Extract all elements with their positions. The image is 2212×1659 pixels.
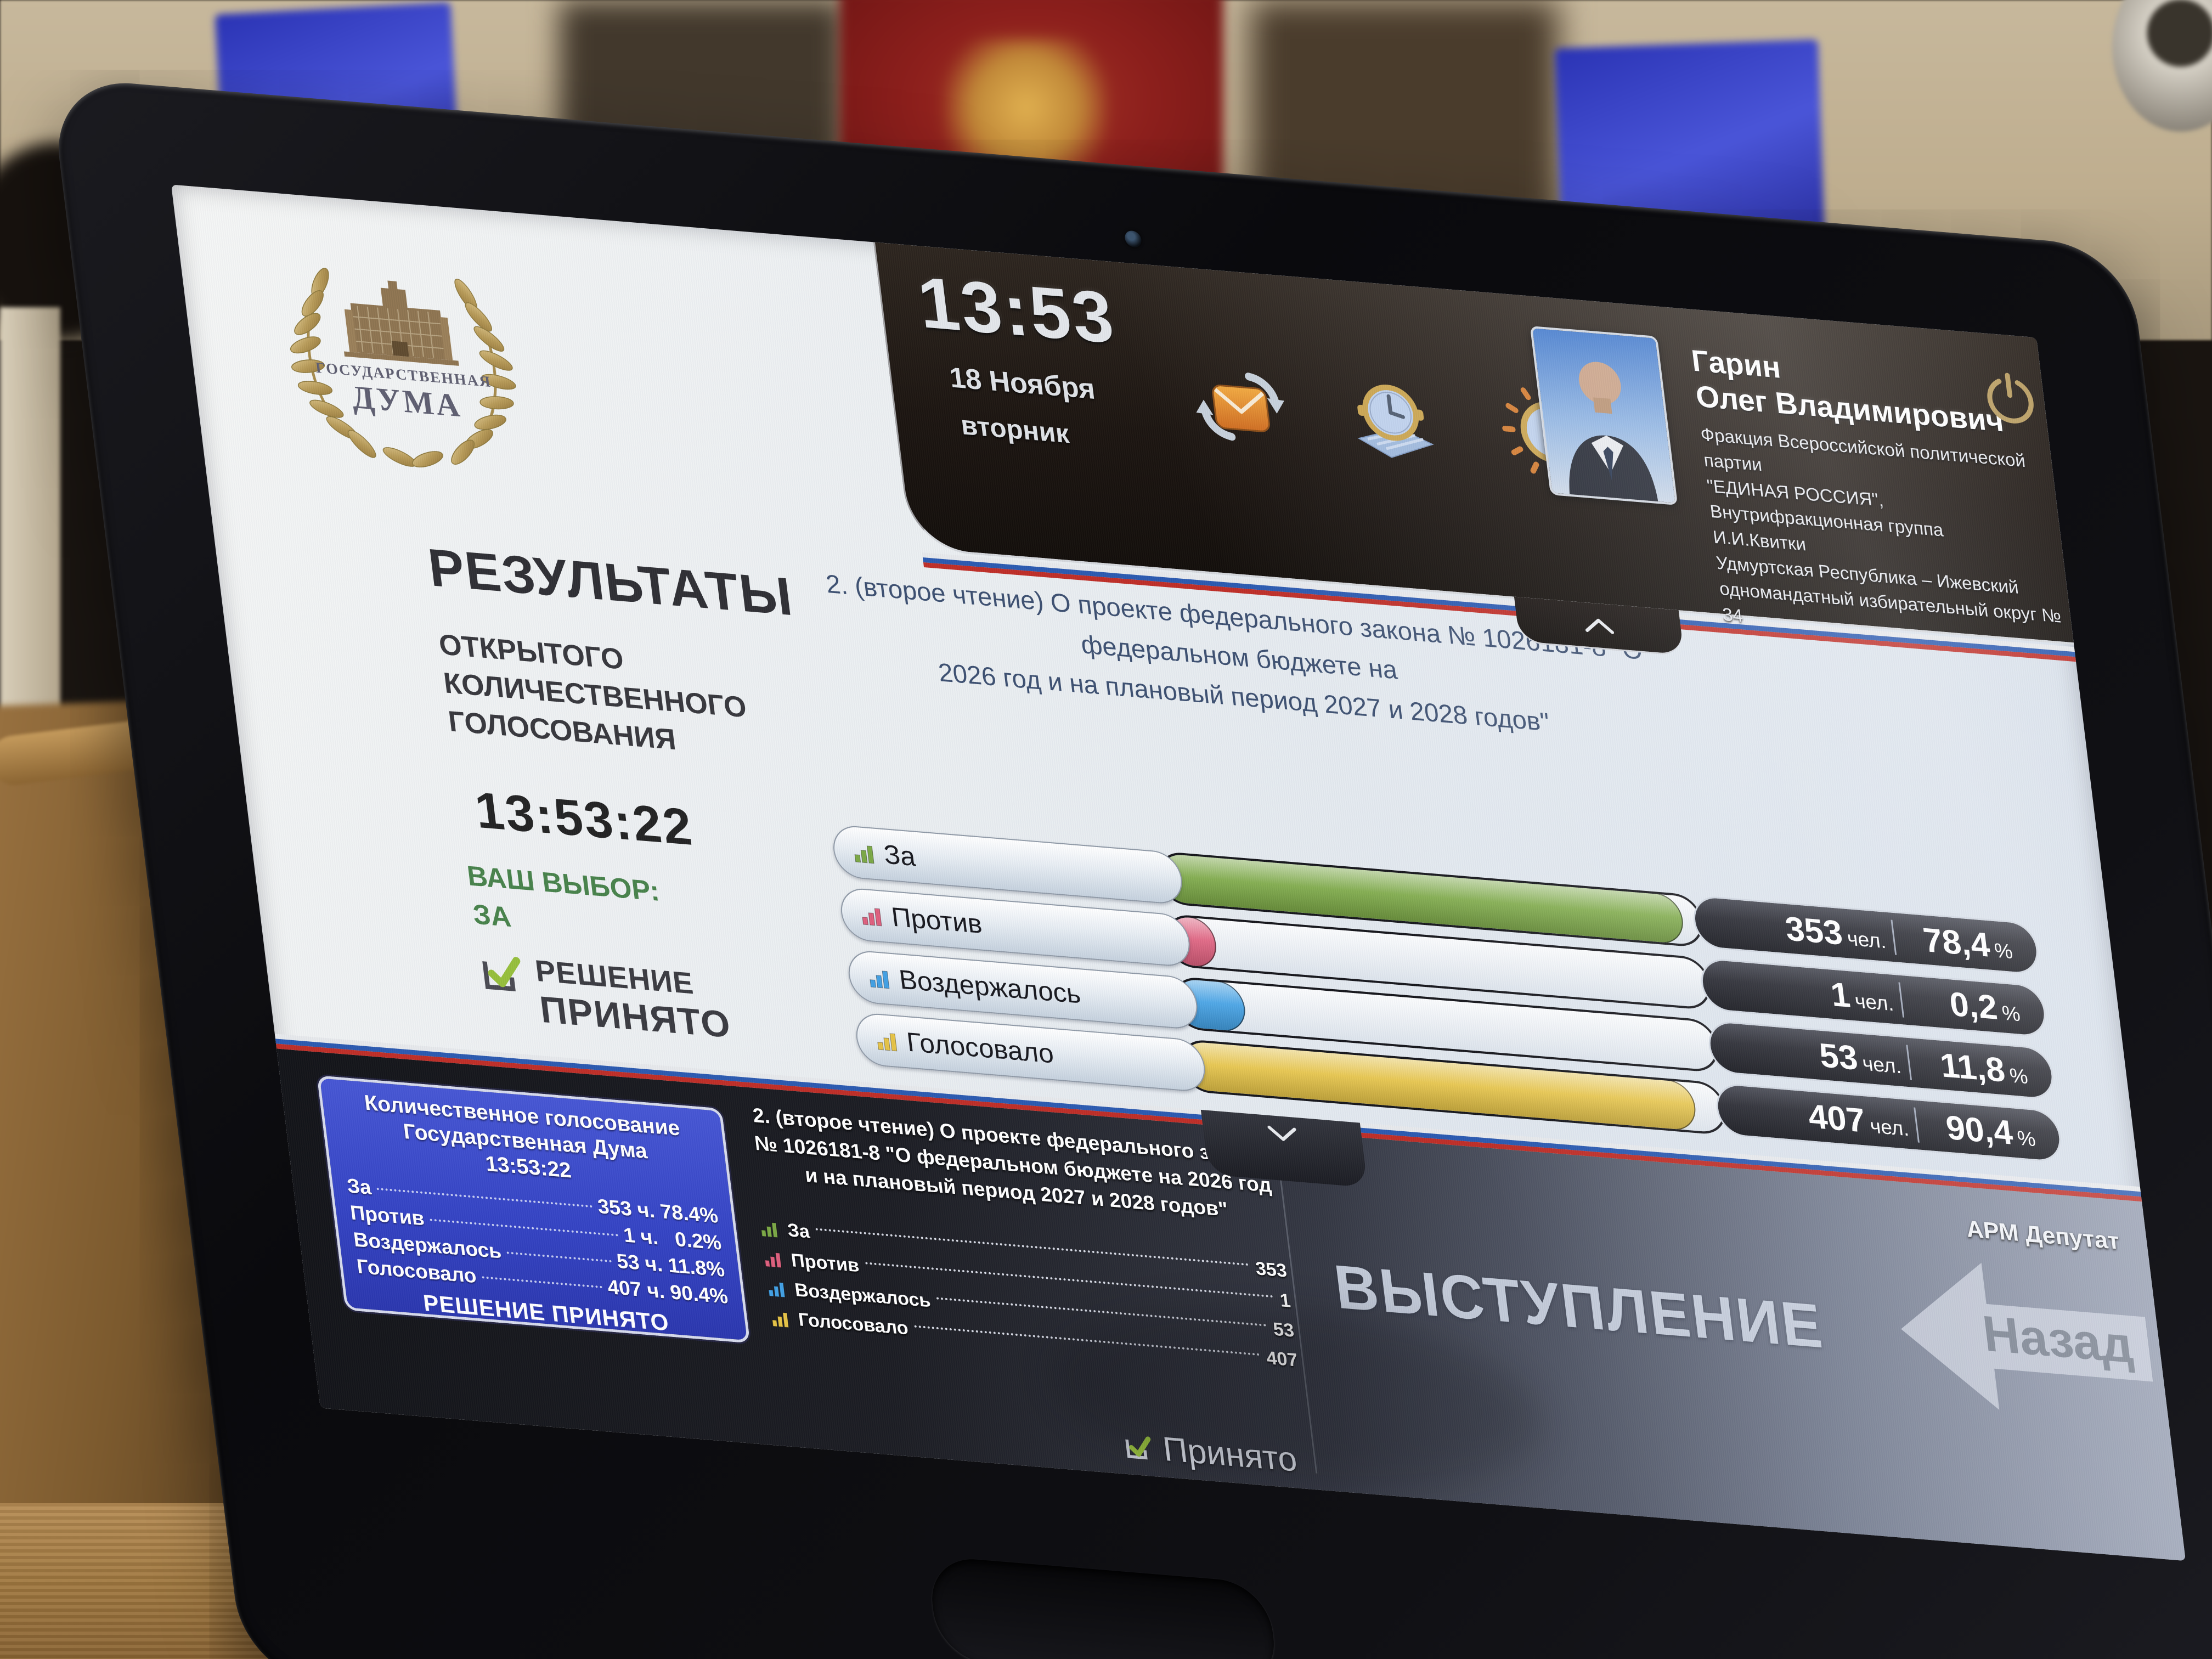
bars-icon [763,1249,783,1269]
accepted-check-icon [1121,1430,1155,1464]
decision-status: РЕШЕНИЕ ПРИНЯТО [475,948,733,1046]
voting-terminal-tablet: ГОСУДАРСТВЕННАЯ ДУМА 13:53 18 Ноября вто… [49,77,2212,1659]
dock-slot [927,1555,1279,1659]
state-duma-logo: ГОСУДАРСТВЕННАЯ ДУМА [257,224,544,482]
vote-label: Голосовало [905,1027,1056,1070]
vote-count: 407 [1806,1097,1867,1139]
deputy-photo [1530,326,1678,505]
duma-building-icon [335,276,459,366]
vote-unit: чел. [1853,989,1895,1015]
bars-icon [875,1029,900,1052]
vote-percent: 90,4 [1944,1109,2015,1152]
vote-unit: чел. [1861,1052,1903,1077]
summary-panel: Количественное голосование Государственн… [317,1075,750,1344]
percent-sign: % [2008,1064,2029,1088]
vote-label: Против [890,902,984,940]
decision-check-icon [475,948,527,998]
results-title: РЕЗУЛЬТАТЫ [425,537,796,628]
bars-icon [770,1308,791,1329]
vote-unit: чел. [1869,1114,1910,1140]
chevron-up-icon [1580,614,1618,637]
vote-count: 1 [1829,975,1852,1015]
vote-label: За [882,839,917,873]
vote-percent: 78,4 [1921,921,1992,964]
vote-results-list: За 353чел. 78,4% [830,824,2034,923]
your-choice-value: ЗА [471,898,513,934]
bars-icon [860,904,884,927]
bars-icon [766,1278,787,1299]
vote-count: 53 [1818,1036,1860,1077]
vote-unit: чел. [1846,927,1887,952]
percent-sign: % [2001,1001,2022,1025]
vote-count: 353 [1783,910,1844,952]
session-time-icon[interactable] [1341,373,1446,477]
accepted-label: Принято [1161,1430,1299,1480]
chevron-down-icon [1263,1122,1302,1145]
percent-sign: % [2016,1126,2037,1150]
vote-percent: 11,8 [1938,1046,2007,1090]
front-camera [1124,230,1143,247]
laurel-wreath-icon: ГОСУДАРСТВЕННАЯ ДУМА [257,224,544,482]
bars-icon [759,1218,780,1239]
messages-sync-icon[interactable] [1186,354,1294,461]
hall-photo: ГОСУДАРСТВЕННАЯ ДУМА 13:53 18 Ноября вто… [0,0,2212,1659]
vote-label: Воздержалось [898,964,1082,1010]
vote-timestamp: 13:53:22 [472,781,696,857]
terminal-screen: ГОСУДАРСТВЕННАЯ ДУМА 13:53 18 Ноября вто… [171,184,2186,1561]
vote-percent: 0,2 [1948,985,2000,1026]
power-icon[interactable] [1980,369,2040,426]
bars-icon [867,966,892,990]
bars-icon [852,841,877,865]
percent-sign: % [1993,939,2014,963]
back-label: Назад [1979,1305,2136,1375]
